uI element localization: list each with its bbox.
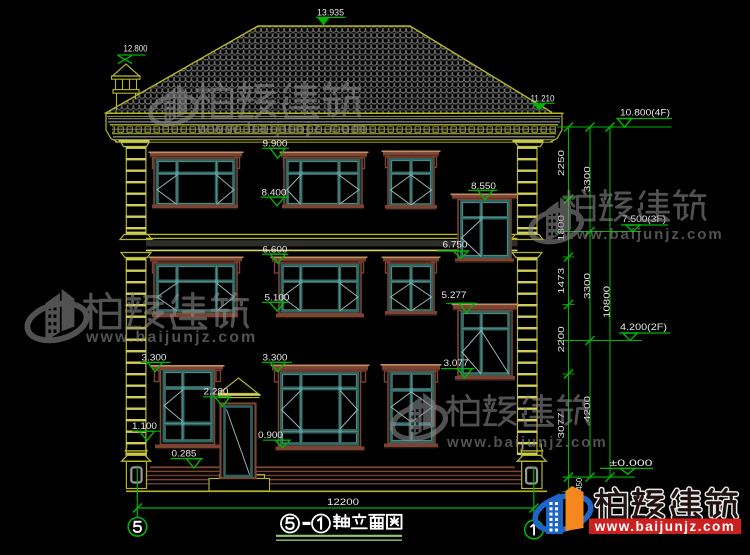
svg-text:4.200(2F): 4.200(2F) (620, 322, 667, 333)
svg-text:www.baijunjz.com: www.baijunjz.com (85, 329, 257, 346)
svg-text:6.750: 6.750 (443, 239, 468, 250)
svg-text:2250: 2250 (557, 149, 566, 176)
svg-text:www.baijunjz.com: www.baijunjz.com (196, 120, 368, 137)
svg-text:0.285: 0.285 (172, 448, 197, 459)
svg-text:1473: 1473 (557, 267, 566, 294)
svg-text:12200: 12200 (327, 497, 359, 508)
svg-text:1.100: 1.100 (132, 421, 157, 432)
svg-text:www.baijunjz.com: www.baijunjz.com (446, 434, 608, 451)
svg-text:2.280: 2.280 (204, 386, 229, 397)
svg-text:www.baijunjz.com: www.baijunjz.com (594, 519, 736, 534)
svg-text:3300: 3300 (583, 272, 592, 299)
svg-text:3.077: 3.077 (444, 358, 469, 369)
svg-text:2200: 2200 (557, 325, 566, 352)
svg-text:12.800: 12.800 (124, 44, 148, 55)
svg-text:0.900: 0.900 (258, 430, 283, 441)
svg-text:10.800(4F): 10.800(4F) (620, 108, 670, 119)
svg-text:±0.000: ±0.000 (610, 458, 653, 469)
svg-text:10800: 10800 (603, 285, 612, 318)
svg-text:5.277: 5.277 (442, 290, 467, 301)
svg-text:3300: 3300 (583, 165, 592, 192)
svg-text:www.baijunjz.com: www.baijunjz.com (562, 226, 724, 243)
